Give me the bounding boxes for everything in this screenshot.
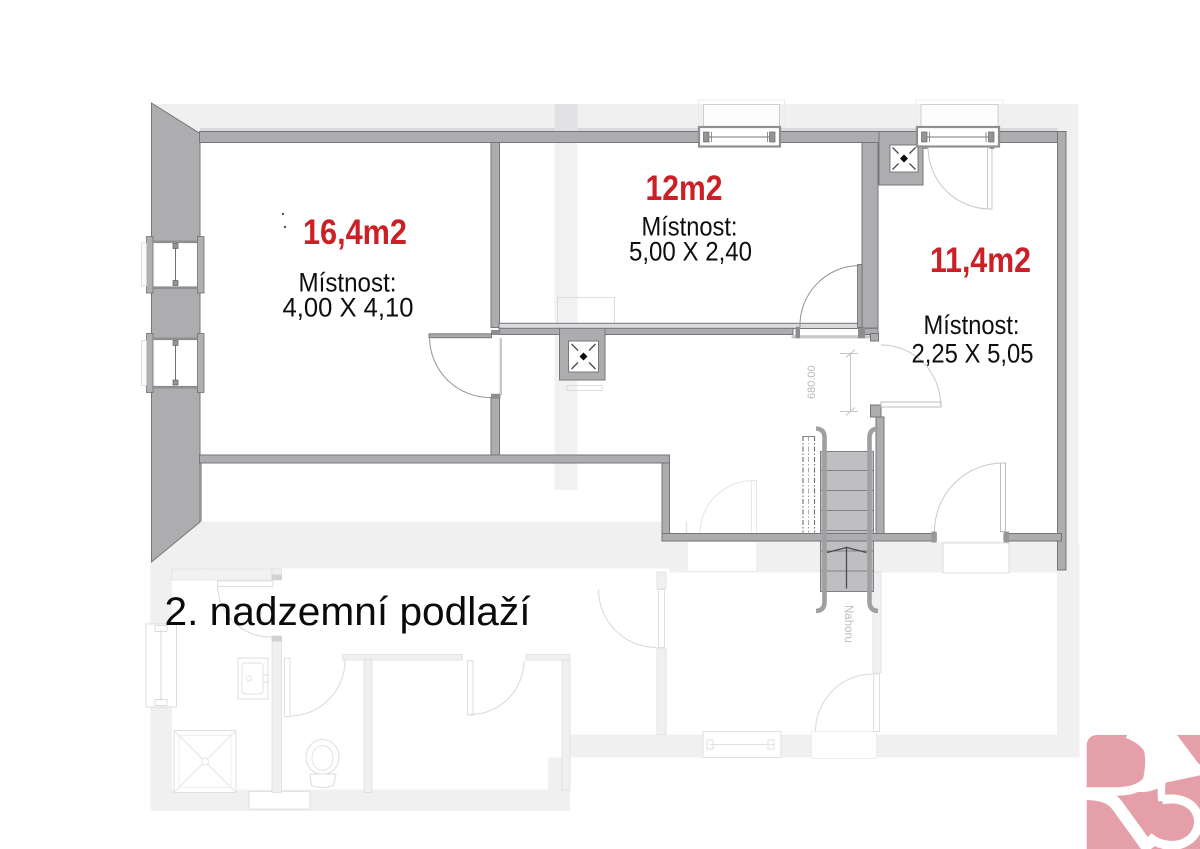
svg-text:16,4m2: 16,4m2 <box>303 213 407 252</box>
svg-text:5,00 X 2,40: 5,00 X 2,40 <box>629 236 752 266</box>
svg-text:11,4m2: 11,4m2 <box>930 241 1031 280</box>
svg-text:2. nadzemní podlaží: 2. nadzemní podlaží <box>165 590 531 634</box>
svg-text:Nahoru: Nahoru <box>842 605 854 643</box>
svg-text:12m2: 12m2 <box>646 169 723 208</box>
svg-text:2,25 X 5,05: 2,25 X 5,05 <box>912 339 1034 369</box>
svg-text:Místnost:: Místnost: <box>924 310 1020 340</box>
svg-text:4,00 X 4,10: 4,00 X 4,10 <box>283 293 414 323</box>
svg-text:680.00: 680.00 <box>806 365 818 399</box>
